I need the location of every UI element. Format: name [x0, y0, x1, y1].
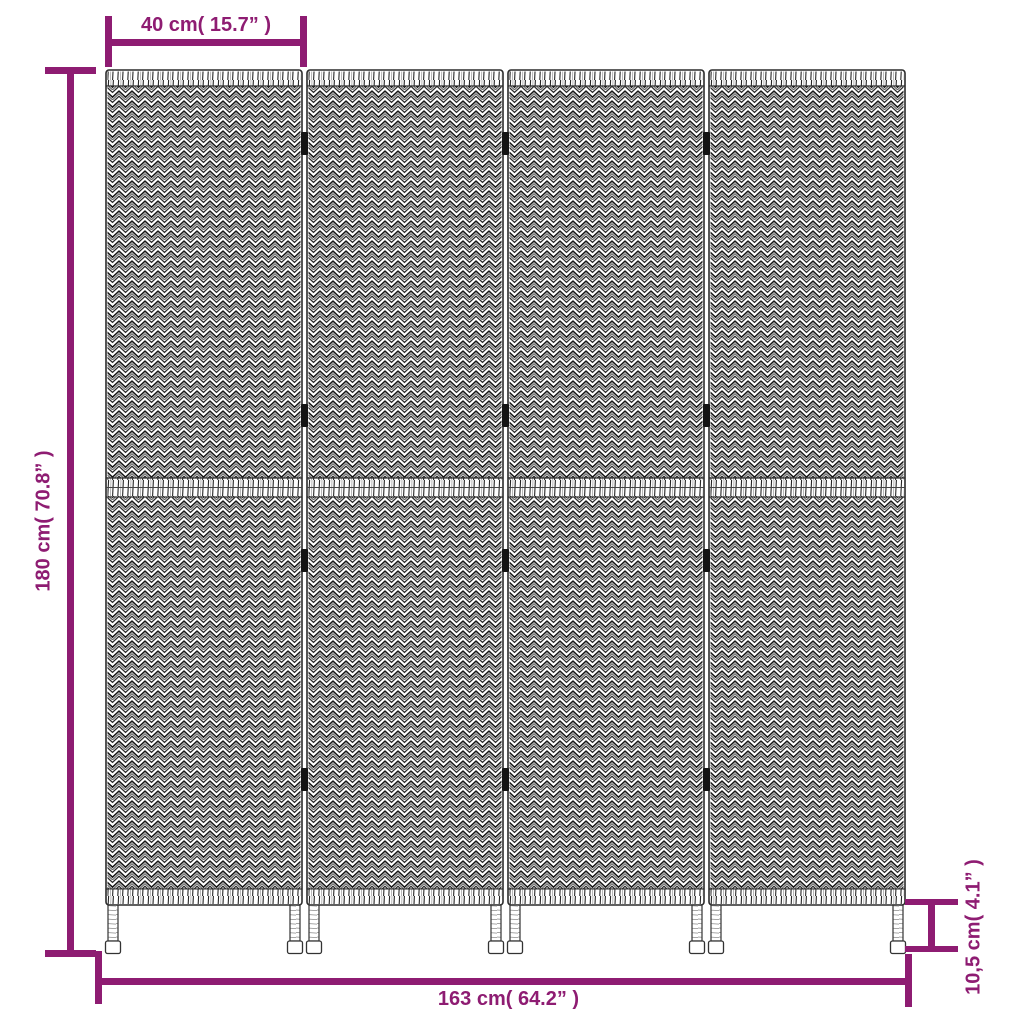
dimension-end-cap [45, 950, 96, 957]
dimension-total-width-label: 163 cm( 64.2” ) [105, 986, 912, 1012]
hinge-icon [703, 132, 710, 155]
dimension-end-cap [45, 67, 96, 74]
dimension-line [67, 70, 74, 957]
dimension-panel-width-label: 40 cm( 15.7” ) [105, 12, 307, 38]
hinge-icon [301, 404, 308, 427]
dimension-line [99, 978, 912, 985]
hinge-icon [502, 549, 509, 572]
hinge-icon [502, 404, 509, 427]
divider-panel-4 [709, 70, 906, 954]
divider-panel-3 [508, 70, 705, 954]
hinge-icon [301, 768, 308, 791]
hinge-icon [301, 132, 308, 155]
hinge-icon [703, 404, 710, 427]
divider-panel-1 [106, 70, 303, 954]
hinge-icon [703, 549, 710, 572]
dimension-foot-height-label: 10,5 cm( 4.1” ) [963, 859, 986, 995]
dimension-end-cap [905, 946, 958, 952]
hinge-icon [502, 768, 509, 791]
hinge-icon [301, 549, 308, 572]
dimension-line [105, 39, 307, 46]
dimension-height-label: 180 cm( 70.8” ) [33, 450, 56, 591]
product-dimension-diagram: 40 cm( 15.7” ) 180 cm( 70.8” ) 163 cm( 6… [0, 0, 1024, 1024]
divider-panel-2 [307, 70, 504, 954]
room-divider-illustration [0, 0, 1024, 1024]
hinge-icon [502, 132, 509, 155]
dimension-end-cap [95, 951, 102, 1004]
dimension-line [928, 899, 935, 952]
hinge-icon [703, 768, 710, 791]
